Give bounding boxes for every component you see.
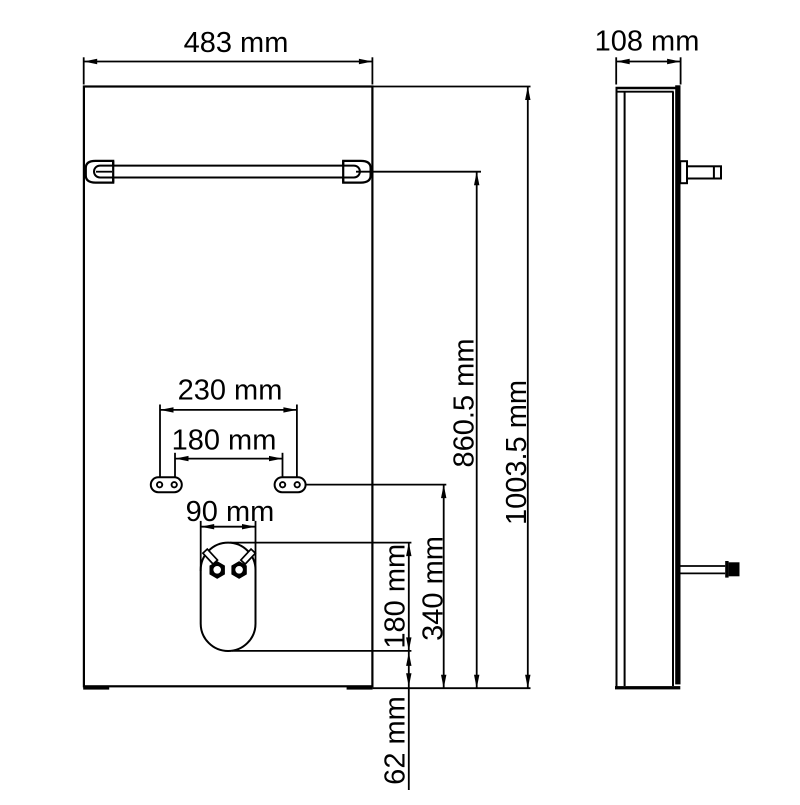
svg-text:62 mm: 62 mm — [380, 696, 412, 785]
svg-text:860.5 mm: 860.5 mm — [449, 339, 481, 468]
svg-text:340 mm: 340 mm — [418, 536, 450, 641]
svg-text:108 mm: 108 mm — [595, 26, 700, 58]
svg-text:483 mm: 483 mm — [184, 27, 289, 59]
svg-text:180 mm: 180 mm — [172, 425, 277, 457]
svg-text:90 mm: 90 mm — [186, 496, 275, 528]
svg-text:180 mm: 180 mm — [379, 544, 411, 649]
svg-text:230 mm: 230 mm — [178, 375, 283, 407]
svg-text:1003.5 mm: 1003.5 mm — [501, 380, 533, 525]
